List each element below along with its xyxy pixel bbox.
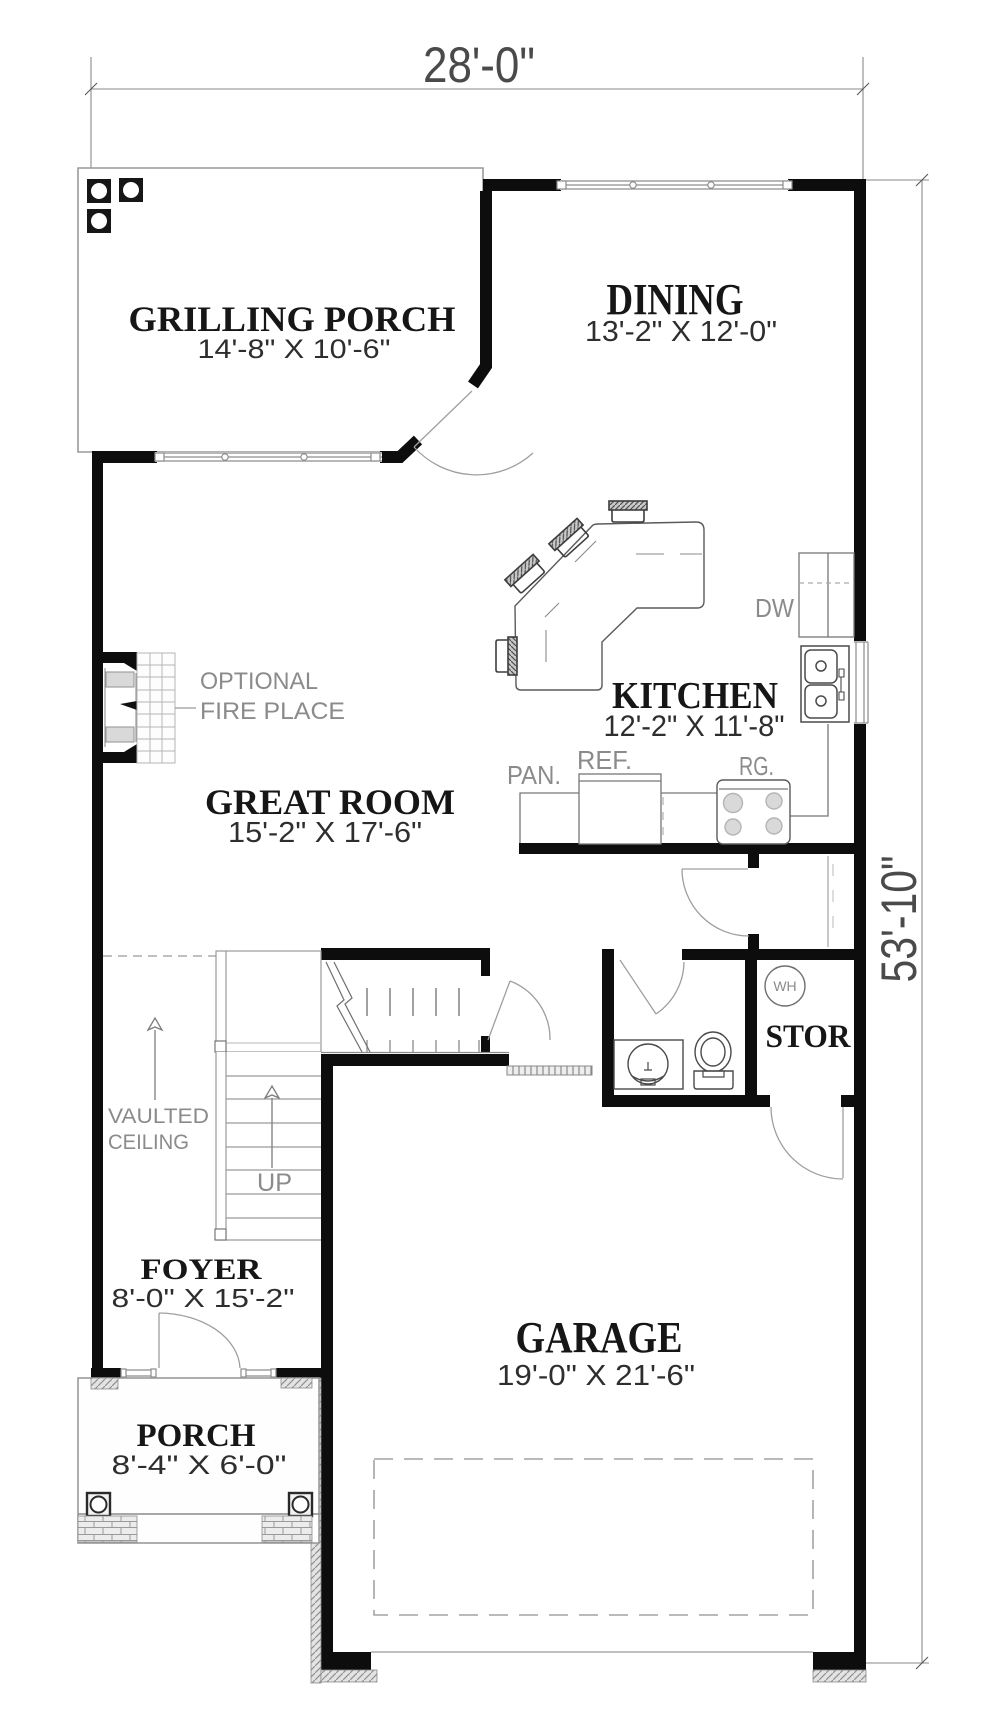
svg-text:CEILING: CEILING xyxy=(108,1131,189,1154)
svg-text:53'-10": 53'-10" xyxy=(871,856,927,983)
svg-text:WH: WH xyxy=(773,978,796,994)
svg-text:15'-2" X 17'-6": 15'-2" X 17'-6" xyxy=(228,817,422,849)
svg-text:8'-0" X 15'-2": 8'-0" X 15'-2" xyxy=(112,1283,295,1313)
svg-text:GRILLING PORCH: GRILLING PORCH xyxy=(129,299,456,339)
svg-text:GREAT ROOM: GREAT ROOM xyxy=(205,782,455,822)
svg-text:8'-4" X 6'-0": 8'-4" X 6'-0" xyxy=(112,1450,287,1480)
svg-text:STOR: STOR xyxy=(766,1019,852,1055)
svg-text:UP: UP xyxy=(257,1169,292,1197)
svg-text:FIRE PLACE: FIRE PLACE xyxy=(200,698,345,725)
svg-text:28'-0": 28'-0" xyxy=(423,37,535,93)
svg-text:OPTIONAL: OPTIONAL xyxy=(200,668,318,695)
svg-text:14'-8" X 10'-6": 14'-8" X 10'-6" xyxy=(198,334,391,364)
svg-text:PAN.: PAN. xyxy=(507,760,561,790)
svg-text:GARAGE: GARAGE xyxy=(516,1313,683,1362)
svg-text:19'-0" X 21'-6": 19'-0" X 21'-6" xyxy=(497,1360,695,1392)
svg-text:FOYER: FOYER xyxy=(141,1253,262,1286)
svg-text:PORCH: PORCH xyxy=(137,1418,256,1454)
svg-text:12'-2" X 11'-8": 12'-2" X 11'-8" xyxy=(604,710,785,743)
svg-text:VAULTED: VAULTED xyxy=(108,1105,209,1128)
svg-text:DW: DW xyxy=(755,593,794,623)
svg-text:REF.: REF. xyxy=(577,745,632,775)
svg-text:RG.: RG. xyxy=(739,751,774,781)
svg-text:13'-2" X 12'-0": 13'-2" X 12'-0" xyxy=(585,316,777,348)
